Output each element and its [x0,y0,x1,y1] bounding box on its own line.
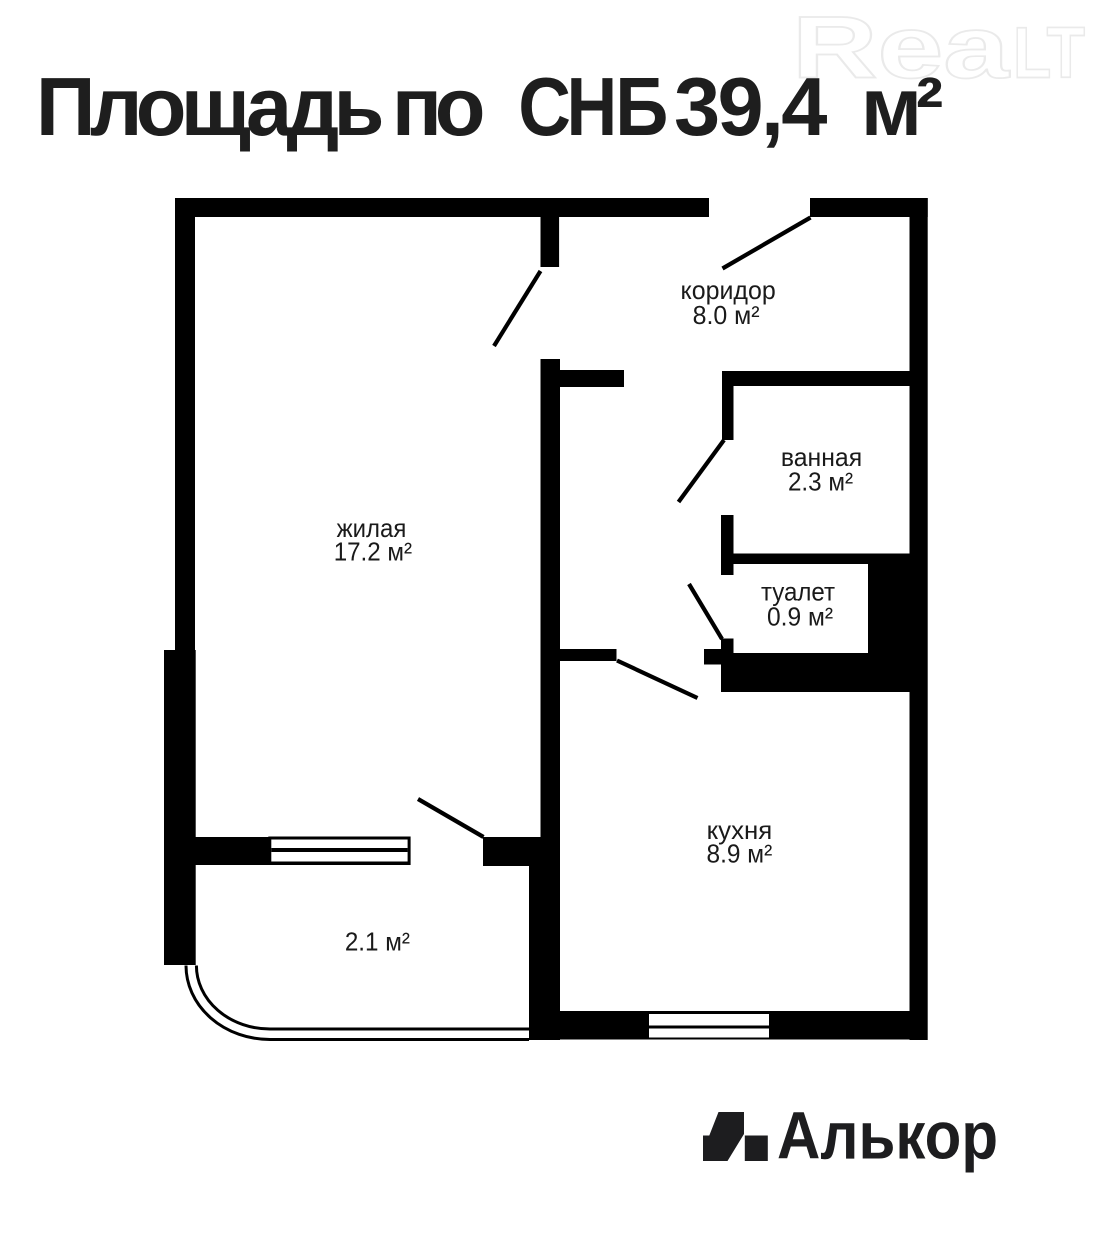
svg-text:С: С [518,60,571,153]
svg-text:м²: м² [861,60,944,153]
svg-text:Алькор: Алькор [777,1098,998,1173]
svg-text:LT: LT [1013,14,1085,94]
svg-text:8.9 м²: 8.9 м² [707,838,773,868]
svg-text:8.0 м²: 8.0 м² [693,300,760,330]
svg-text:17.2 м²: 17.2 м² [334,537,413,567]
svg-text:0.9 м²: 0.9 м² [767,602,833,632]
svg-text:Б: Б [615,60,668,153]
svg-text:2.1 м²: 2.1 м² [345,927,410,957]
svg-text:по: по [392,60,486,153]
svg-text:2.3 м²: 2.3 м² [788,467,853,497]
svg-text:Площадь: Площадь [36,60,385,153]
svg-text:Н: Н [567,61,618,153]
svg-text:39,4: 39,4 [674,60,827,153]
